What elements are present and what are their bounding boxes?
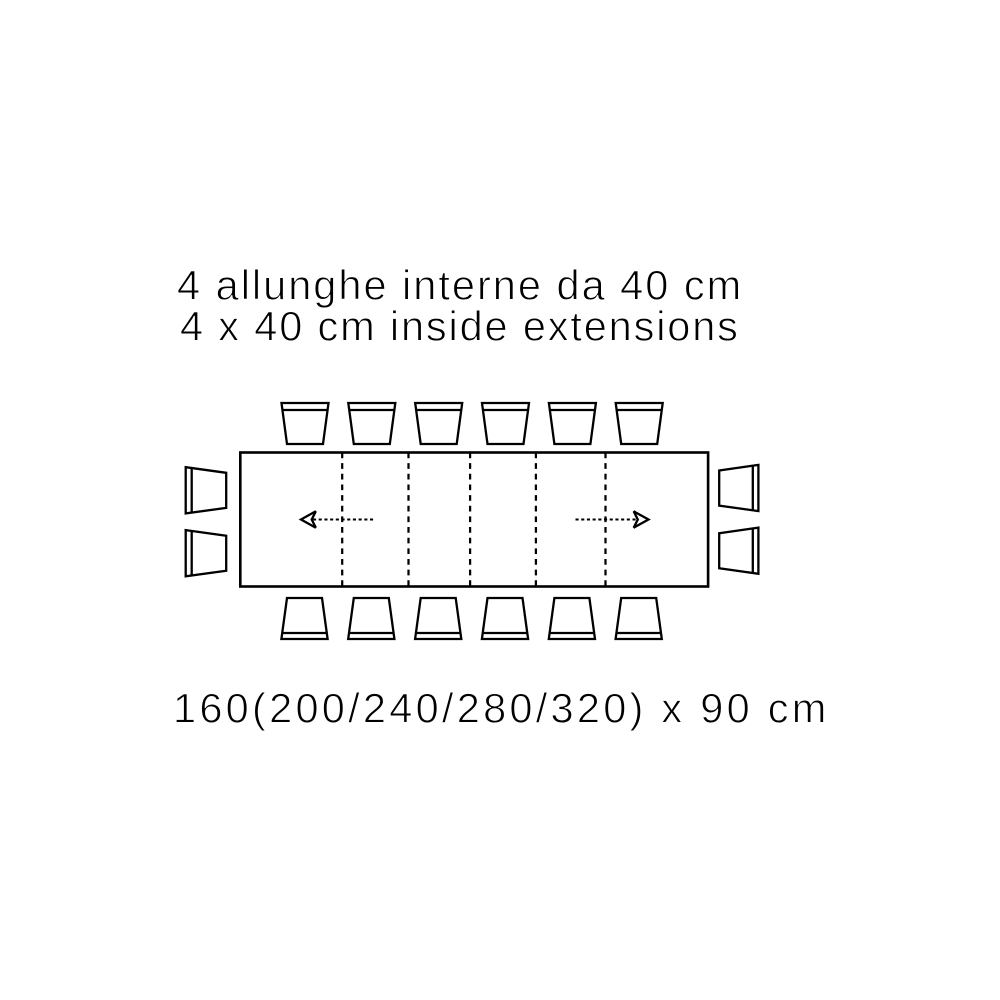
svg-text:160(200/240/280/320) x 90 cm: 160(200/240/280/320) x 90 cm [173,685,830,732]
svg-text:4 x 40 cm inside extensions: 4 x 40 cm inside extensions [180,303,740,350]
svg-text:4 allunghe interne da 40 cm: 4 allunghe interne da 40 cm [177,262,743,309]
